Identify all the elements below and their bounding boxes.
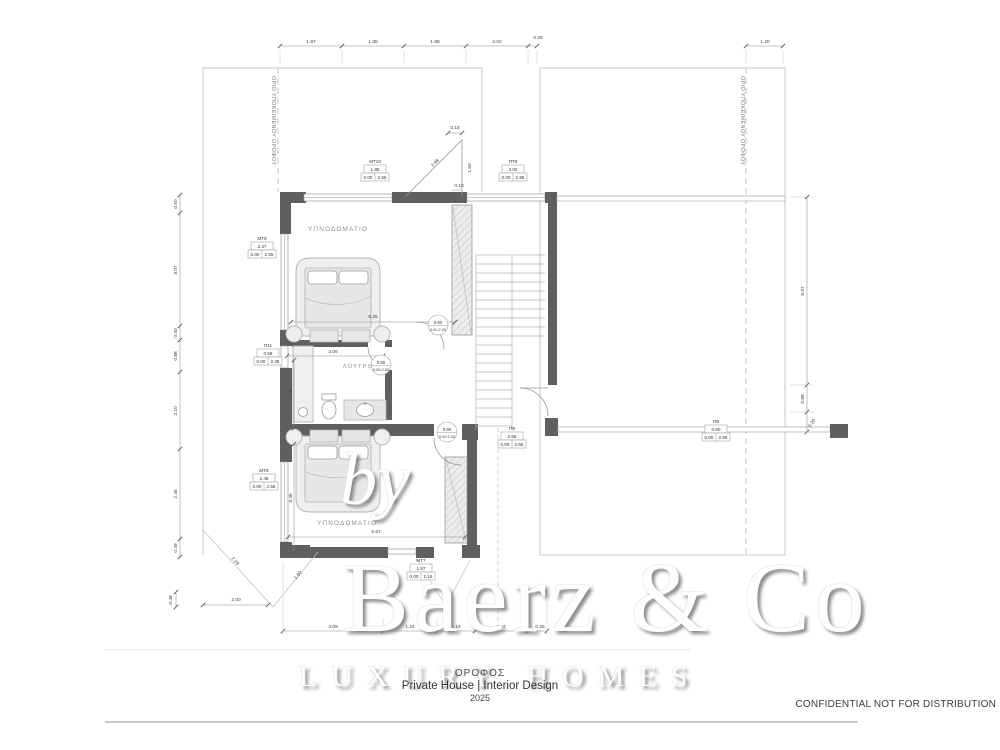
svg-text:0.00 2.20: 0.00 2.20 — [439, 435, 455, 439]
svg-text:0.88: 0.88 — [173, 351, 179, 361]
svg-text:1.50: 1.50 — [467, 163, 473, 173]
opening-tag-mt10: ΜΤ10 1.88 0.00 2.55 — [361, 159, 389, 181]
floor-below-boundary: ΟΡΙΟ ΥΠΟΚΕΙΜΕΝΟΥ ΟΡΟΦΟΥ ΟΡΙΟ ΥΠΟΚΕΙΜΕΝΟΥ… — [203, 68, 785, 555]
svg-text:1.16: 1.16 — [451, 624, 461, 630]
sink — [357, 404, 374, 417]
svg-text:ΜΤ8: ΜΤ8 — [259, 468, 269, 473]
nightstand — [374, 326, 390, 342]
svg-text:1.97: 1.97 — [306, 39, 316, 45]
opening-tag-mt8: ΜΤ8 2.48 0.00 2.55 — [250, 468, 278, 490]
opening-tag-p11: Π11 0.56 0.00 2.38 — [254, 343, 282, 365]
svg-text:2.02: 2.02 — [496, 624, 506, 630]
drawing-sheet: ΟΡΙΟ ΥΠΟΚΕΙΜΕΝΟΥ ΟΡΟΦΟΥ ΟΡΙΟ ΥΠΟΚΕΙΜΕΝΟΥ… — [0, 0, 1000, 750]
shower-drain-icon — [299, 408, 308, 417]
svg-text:1.57: 1.57 — [417, 566, 426, 571]
svg-text:5.67: 5.67 — [371, 529, 381, 535]
door-tag-bedroom2: 0.80 0.00 2.20 — [437, 422, 457, 442]
svg-text:2.55: 2.55 — [516, 175, 525, 180]
opening-tag-p8: Π8 0.60 0.00 2.55 — [702, 419, 730, 441]
svg-text:0.00: 0.00 — [705, 435, 714, 440]
svg-text:ΠΤ8: ΠΤ8 — [509, 159, 518, 164]
svg-text:0.00: 0.00 — [364, 175, 373, 180]
room-label-bedroom-bottom: ΥΠΝΟΔΩΜΑΤΙΟ — [317, 520, 377, 527]
svg-text:0.50: 0.50 — [173, 199, 179, 209]
svg-text:2.18: 2.18 — [288, 389, 294, 399]
door-tag-hall: 0.80 0.00 2.20 — [428, 315, 448, 335]
floor-plan-drawing: ΟΡΙΟ ΥΠΟΚΕΙΜΕΝΟΥ ΟΡΟΦΟΥ ΟΡΙΟ ΥΠΟΚΕΙΜΕΝΟΥ… — [0, 0, 1000, 750]
bathroom-fixtures — [293, 346, 386, 422]
svg-text:2.66: 2.66 — [508, 434, 517, 439]
nightstand — [286, 326, 302, 342]
svg-text:1.88: 1.88 — [371, 167, 380, 172]
svg-text:0.00: 0.00 — [502, 175, 511, 180]
svg-text:2.55: 2.55 — [515, 442, 524, 447]
project-title: Private House | Interior Design — [330, 680, 630, 692]
svg-text:1.98: 1.98 — [430, 39, 440, 45]
svg-text:Π8: Π8 — [713, 419, 719, 424]
svg-text:1.20: 1.20 — [760, 39, 770, 45]
svg-text:2.37: 2.37 — [258, 244, 267, 249]
svg-text:0.40: 0.40 — [173, 328, 179, 338]
svg-text:0.80: 0.80 — [377, 360, 386, 365]
svg-text:ΜΤ9: ΜΤ9 — [257, 236, 267, 241]
svg-text:0.00 2.20: 0.00 2.20 — [430, 328, 446, 332]
svg-text:0.00: 0.00 — [251, 252, 260, 257]
svg-text:0.80: 0.80 — [434, 320, 443, 325]
door-tag-bathroom: 0.80 0.00 2.20 — [371, 355, 391, 375]
svg-text:5.25: 5.25 — [368, 314, 378, 320]
svg-text:Π9: Π9 — [509, 426, 515, 431]
bed-lower — [286, 429, 390, 512]
svg-text:3.09: 3.09 — [328, 624, 338, 630]
nightstand — [374, 429, 390, 445]
title-block: ΟΡΟΦΟΣ Private House | Interior Design 2… — [330, 668, 630, 703]
opening-tag-mt7: ΜΤ7 1.57 0.00 2.16 — [407, 558, 435, 580]
svg-text:2.10: 2.10 — [173, 406, 179, 416]
svg-text:1.85: 1.85 — [368, 39, 378, 45]
svg-text:0.60: 0.60 — [712, 427, 721, 432]
svg-text:0.15: 0.15 — [450, 125, 460, 131]
svg-text:2.55: 2.55 — [378, 175, 387, 180]
svg-text:3.02: 3.02 — [509, 167, 518, 172]
confidential-notice: CONFIDENTIAL NOT FOR DISTRIBUTION — [796, 699, 997, 710]
room-label-bedroom-top: ΥΠΝΟΔΩΜΑΤΙΟ — [308, 226, 368, 233]
toilet-tank — [322, 394, 336, 400]
svg-text:1.24: 1.24 — [405, 624, 415, 630]
bed-upper — [286, 258, 390, 342]
svg-text:2.55: 2.55 — [267, 484, 276, 489]
svg-text:3.07: 3.07 — [173, 265, 179, 275]
nightstand — [286, 429, 302, 445]
svg-text:0.00: 0.00 — [257, 359, 266, 364]
svg-text:ΜΤ10: ΜΤ10 — [369, 159, 381, 164]
opening-tag-pt8: ΠΤ8 3.02 0.00 2.55 — [499, 159, 527, 181]
svg-text:6.07: 6.07 — [800, 286, 806, 296]
svg-text:2.38: 2.38 — [271, 359, 280, 364]
svg-text:0.00: 0.00 — [410, 574, 419, 579]
svg-text:2.48: 2.48 — [260, 476, 269, 481]
svg-text:3.48: 3.48 — [430, 158, 441, 169]
svg-text:0.00: 0.00 — [253, 484, 262, 489]
svg-text:0.00: 0.00 — [501, 442, 510, 447]
svg-text:2.46: 2.46 — [173, 489, 179, 499]
opening-tag-p9: Π9 2.66 0.00 2.55 — [498, 426, 526, 448]
svg-text:0.88: 0.88 — [800, 394, 806, 404]
svg-text:2.55: 2.55 — [719, 435, 728, 440]
opening-tag-mt9: ΜΤ9 2.37 0.00 2.55 — [248, 236, 276, 258]
svg-text:2.02: 2.02 — [492, 39, 502, 45]
svg-text:2.00: 2.00 — [231, 597, 241, 603]
project-year: 2025 — [330, 693, 630, 703]
boundary-label-right: ΟΡΙΟ ΥΠΟΚΕΙΜΕΝΟΥ ΟΡΟΦΟΥ — [739, 76, 745, 165]
svg-text:0.56: 0.56 — [264, 351, 273, 356]
boundary-label-left: ΟΡΙΟ ΥΠΟΚΕΙΜΕΝΟΥ ΟΡΟΦΟΥ — [270, 76, 276, 165]
svg-text:0.48: 0.48 — [168, 595, 174, 605]
svg-text:0.49: 0.49 — [173, 543, 179, 553]
svg-text:0.80: 0.80 — [443, 427, 452, 432]
dimensions: 1.97 1.85 1.98 2.02 0.28 1.20 0.50 3.07 … — [168, 35, 818, 634]
svg-text:2.55: 2.55 — [265, 252, 274, 257]
room-label-bathroom: ΛΟΥΤΡΟ — [343, 364, 373, 370]
floor-title: ΟΡΟΦΟΣ — [330, 668, 630, 679]
svg-text:2.16: 2.16 — [424, 574, 433, 579]
svg-text:0.25: 0.25 — [535, 624, 545, 630]
svg-text:ΜΤ7: ΜΤ7 — [416, 558, 426, 563]
svg-text:2.29: 2.29 — [229, 556, 240, 567]
svg-text:3.46: 3.46 — [288, 493, 294, 503]
svg-text:0.00 2.20: 0.00 2.20 — [373, 368, 389, 372]
svg-text:0.10: 0.10 — [454, 183, 464, 189]
svg-text:Π11: Π11 — [264, 343, 273, 348]
faucet-icon — [364, 402, 366, 404]
svg-text:0.28: 0.28 — [533, 35, 543, 41]
staircase — [445, 205, 545, 543]
toilet — [322, 401, 336, 419]
svg-text:3.06: 3.06 — [328, 349, 338, 355]
